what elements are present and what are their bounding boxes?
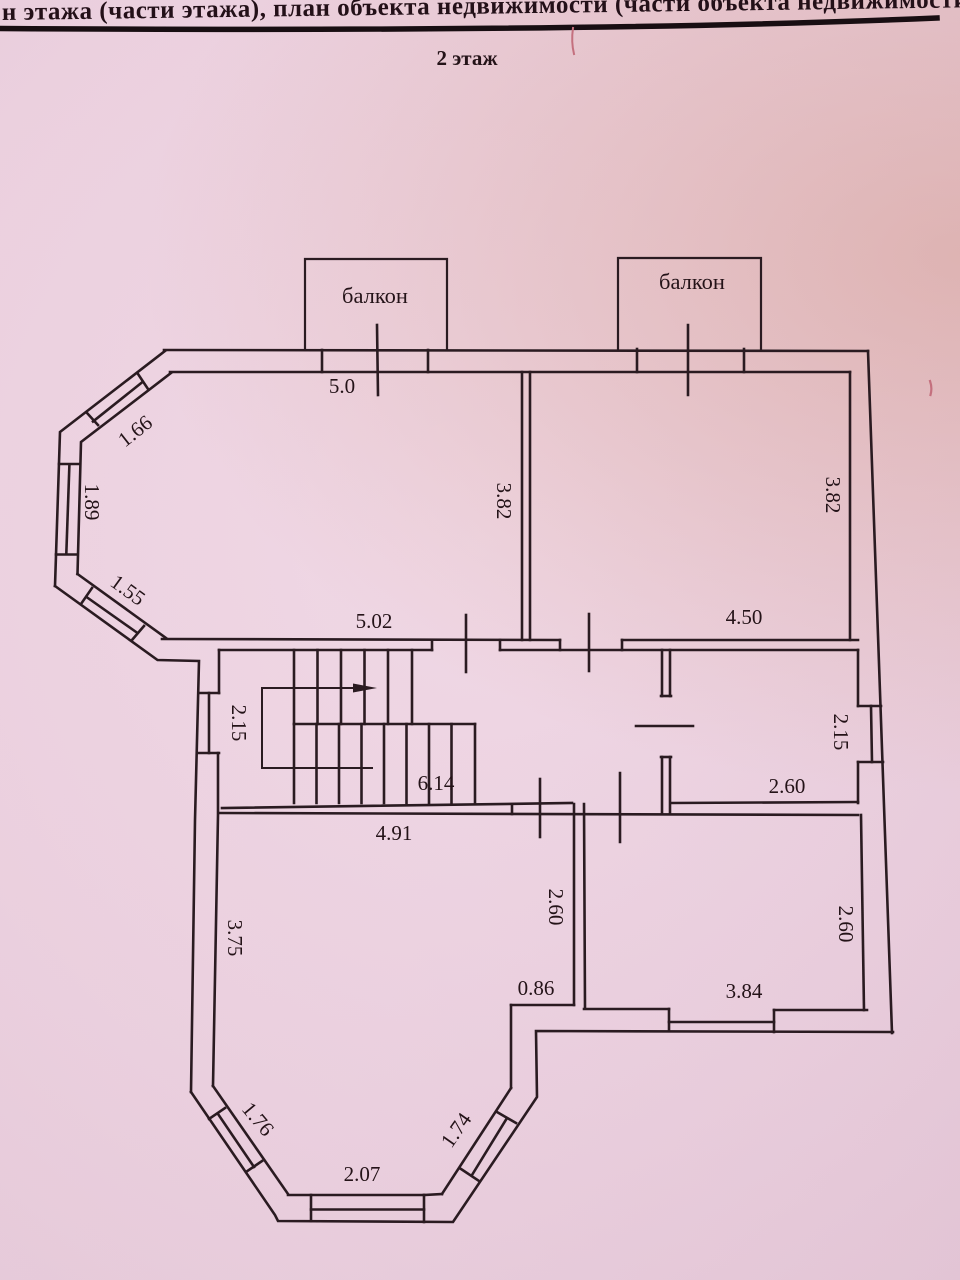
- svg-text:5.02: 5.02: [356, 609, 393, 633]
- svg-text:1.55: 1.55: [106, 569, 150, 610]
- svg-text:3.84: 3.84: [726, 979, 763, 1003]
- svg-text:2.15: 2.15: [227, 705, 251, 742]
- svg-text:5.0: 5.0: [329, 374, 355, 398]
- svg-text:1.66: 1.66: [113, 410, 157, 452]
- svg-text:0.86: 0.86: [518, 976, 555, 1000]
- svg-text:2.60: 2.60: [544, 889, 568, 926]
- svg-text:6.14: 6.14: [418, 771, 455, 795]
- svg-text:2.15: 2.15: [829, 714, 853, 751]
- svg-text:3.75: 3.75: [223, 920, 247, 957]
- svg-text:1.74: 1.74: [436, 1108, 477, 1152]
- svg-text:2.60: 2.60: [769, 774, 806, 798]
- svg-text:4.91: 4.91: [376, 821, 413, 845]
- svg-text:1.76: 1.76: [237, 1097, 279, 1141]
- svg-text:2.07: 2.07: [344, 1162, 381, 1186]
- svg-text:балкон: балкон: [342, 283, 408, 308]
- svg-text:2.60: 2.60: [834, 906, 858, 943]
- svg-text:4.50: 4.50: [726, 605, 763, 629]
- svg-text:2 этаж: 2 этаж: [436, 46, 498, 70]
- svg-text:балкон: балкон: [659, 269, 725, 294]
- svg-text:3.82: 3.82: [492, 483, 516, 520]
- svg-text:1.89: 1.89: [80, 484, 104, 521]
- svg-text:3.82: 3.82: [821, 477, 845, 514]
